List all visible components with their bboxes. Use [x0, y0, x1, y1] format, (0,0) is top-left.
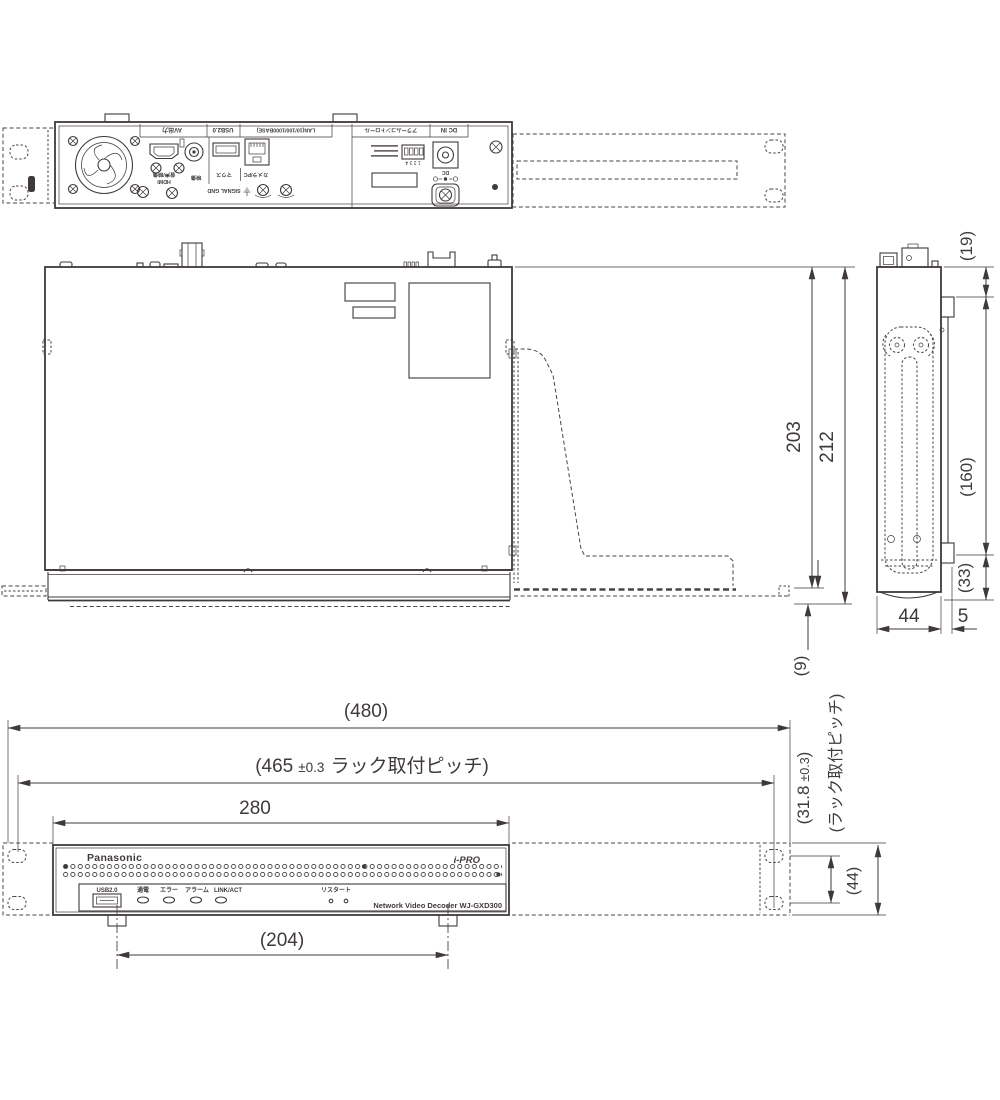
dim-44: 44	[898, 606, 920, 627]
panasonic-logo: Panasonic	[87, 852, 142, 864]
rear-right-rack-panel	[513, 134, 785, 207]
rear-view: AV出力 USB2.0 LAN(10/100/1000BASE) アラームコント…	[3, 114, 785, 208]
dim-480: (480)	[344, 701, 388, 722]
rack-hole-icon	[10, 145, 28, 159]
led-icon	[138, 897, 149, 903]
led-label-error: エラー	[160, 887, 178, 894]
top-view-dimensions: 203 212 (9)	[515, 267, 855, 676]
screw-icon	[69, 137, 78, 146]
signal-gnd-label-group: SIGNAL GND	[207, 187, 250, 196]
front-usb-label: USB2.0	[96, 888, 118, 894]
rear-top-tab	[333, 114, 357, 122]
dim-160: (160)	[957, 457, 976, 497]
rear-label-band: AV出力 USB2.0 LAN(10/100/1000BASE) アラームコント…	[140, 124, 468, 208]
rear-left-rack-ear	[3, 128, 55, 203]
usb-port-label: USB2.0	[212, 126, 234, 132]
restart-hole-icon	[329, 899, 333, 903]
dim-9: (9)	[791, 656, 810, 677]
front-left-rack-ear	[3, 843, 53, 915]
screw-top-icon	[488, 255, 501, 267]
dim-31-8: (31.8±0.3)	[794, 752, 813, 825]
rack-hole-icon	[8, 850, 26, 863]
front-control-area: USB2.0 通電 エラー アラーム LINK/ACT リスタート Networ…	[79, 884, 506, 911]
dim-465-tol: ±0.3	[298, 760, 324, 775]
ground-symbol-icon	[244, 188, 251, 196]
top-vent-area	[409, 283, 490, 378]
dim-465-value: (465	[255, 756, 293, 777]
front-left-ear-dashed	[2, 586, 46, 596]
dim-203: 203	[784, 421, 805, 453]
dim-33: (33)	[955, 563, 974, 593]
lan-port-label: LAN(10/100/1000BASE)	[256, 127, 315, 133]
restart-hole-icon	[344, 899, 348, 903]
side-rail	[940, 297, 954, 563]
dim-204: (204)	[260, 930, 304, 951]
restart-label: リスタート	[321, 886, 351, 894]
dc-label: DC	[442, 169, 450, 175]
dim-465-rack-pitch: (465±0.3ラック取付ピッチ)	[255, 755, 489, 777]
top-view: 203 212 (9)	[2, 243, 855, 676]
screw-icon	[490, 141, 502, 153]
hdmi-label: HDMI	[157, 178, 171, 184]
dim-212: 212	[817, 431, 838, 463]
side-top-connectors	[880, 244, 938, 267]
front-height-dimensions: (31.8±0.3) (ラック取付ピッチ) (44)	[790, 694, 886, 915]
dim-5: 5	[958, 606, 969, 627]
fan-icon	[69, 137, 140, 194]
front-right-rack-panel	[512, 843, 790, 915]
dc-jack-icon: DC	[433, 142, 458, 181]
dim-19: (19)	[957, 231, 976, 261]
camera-pc-label: カメラ/PC	[243, 171, 268, 178]
dc-polarity-icon	[433, 177, 457, 181]
dim-280: 280	[239, 798, 271, 819]
usb-connector-icon	[213, 143, 239, 156]
bracket-protrusion-icon	[428, 252, 455, 267]
indicator-hole-icon	[492, 184, 498, 190]
dip-switch-icon: 1 2 3 4	[402, 145, 424, 165]
dim-rack-pitch-note: (ラック取付ピッチ)	[827, 694, 845, 833]
dim-31-8-tol: ±0.3	[798, 757, 812, 781]
top-label-area	[353, 307, 395, 318]
screw-icon	[278, 185, 294, 198]
dc-in-label: DC IN	[441, 126, 457, 132]
mouse-label: マウス	[216, 171, 232, 179]
lan-connector-icon	[245, 139, 269, 165]
av-out-label: AV出力	[162, 126, 182, 134]
model-label: Network Video Decoder WJ-GXD300	[373, 901, 502, 910]
led-icon	[191, 897, 202, 903]
rack-hole-icon	[765, 140, 783, 153]
screw-icon	[167, 188, 178, 199]
side-view-dimensions: (19) (160) (33) 44 5	[877, 231, 994, 634]
dim-465-suffix: ラック取付ピッチ)	[330, 755, 488, 777]
top-label-area	[345, 283, 395, 301]
screw-icon	[131, 137, 140, 146]
led-icon	[164, 897, 175, 903]
signal-gnd-label: SIGNAL GND	[207, 187, 240, 193]
rating-plate	[372, 173, 417, 187]
dim-44-front: (44)	[845, 867, 862, 895]
top-rear-protrusions	[60, 243, 501, 267]
led-icon	[216, 897, 227, 903]
dim-31-8-value: (31.8	[794, 786, 813, 825]
dim-31-8-close: )	[794, 752, 813, 758]
side-view: (19) (160) (33) 44 5	[877, 231, 994, 634]
dip-switch-legend-lines	[371, 145, 398, 157]
led-label-power: 通電	[137, 886, 149, 894]
technical-drawing-canvas: AV出力 USB2.0 LAN(10/100/1000BASE) アラームコント…	[0, 0, 1000, 1100]
led-label-linkact: LINK/ACT	[214, 888, 242, 894]
audio-video-label: 音声/映像	[152, 171, 175, 179]
top-chassis-outline	[45, 267, 512, 570]
rack-hole-icon	[10, 186, 28, 200]
cable-clamp-icon	[432, 184, 459, 206]
side-foot-arc	[880, 592, 938, 598]
video-label: 映像	[190, 174, 201, 182]
screw-icon	[69, 185, 78, 194]
bnc-top-icon	[180, 243, 204, 267]
dimension-drawing-page: AV出力 USB2.0 LAN(10/100/1000BASE) アラームコント…	[0, 0, 1000, 1100]
rack-hole-icon	[765, 189, 783, 202]
vent-holes	[62, 863, 502, 879]
screw-icon	[138, 187, 149, 198]
rear-top-tab	[105, 114, 129, 122]
front-view: (480) (465±0.3ラック取付ピッチ) 280 Panasonic i-…	[3, 694, 886, 972]
rack-hole-icon	[8, 897, 26, 910]
rack-bracket-dashed-outline	[514, 349, 789, 596]
screw-icon	[255, 185, 271, 198]
ear-slot-icon	[28, 176, 35, 192]
top-front-bezel	[45, 566, 512, 607]
alarm-control-label: アラームコントロール	[364, 127, 418, 134]
dip-numbers-label: 1 2 3 4	[405, 159, 421, 165]
led-label-alarm: アラーム	[185, 887, 209, 894]
side-dashed-features	[881, 327, 937, 573]
side-chassis-outline	[877, 267, 941, 592]
